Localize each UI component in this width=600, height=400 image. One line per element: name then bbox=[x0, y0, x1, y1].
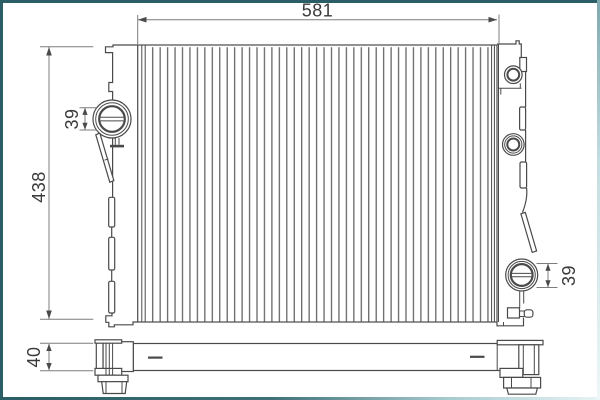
radiator-diagram-page: 581 438 39 39 40 bbox=[0, 0, 600, 400]
side-left-fitting bbox=[95, 340, 133, 394]
left-tank-bracket bbox=[109, 237, 115, 270]
radiator-technical-drawing: 581 438 39 39 40 bbox=[0, 0, 600, 400]
side-body bbox=[133, 344, 520, 371]
dimension-bottom-depth bbox=[40, 343, 93, 370]
right-tank bbox=[497, 41, 538, 326]
left-tank-bracket bbox=[109, 197, 115, 227]
dimension-right-port bbox=[537, 264, 558, 288]
left-tank bbox=[93, 45, 138, 327]
right-strut bbox=[521, 212, 537, 252]
side-view bbox=[95, 340, 543, 394]
lower-fitting-right bbox=[508, 291, 533, 318]
dim-label-right-port: 39 bbox=[559, 265, 579, 286]
left-strut bbox=[96, 133, 114, 182]
dim-label-left-height: 438 bbox=[29, 171, 49, 203]
right-tank-bracket bbox=[520, 162, 527, 188]
right-tank-foot bbox=[497, 318, 524, 326]
left-tank-bracket bbox=[109, 281, 115, 313]
right-port-small bbox=[505, 66, 523, 84]
radiator-core bbox=[138, 45, 497, 322]
dim-label-left-port: 39 bbox=[62, 108, 82, 129]
right-tank-bracket bbox=[520, 107, 526, 130]
core-fins bbox=[148, 47, 490, 321]
dim-label-top-width: 581 bbox=[302, 1, 334, 21]
right-port-mid bbox=[503, 134, 525, 156]
left-tank-foot bbox=[106, 313, 138, 327]
drain-cap-right bbox=[506, 259, 538, 291]
dim-label-bottom-depth: 40 bbox=[24, 346, 44, 367]
front-view bbox=[93, 41, 538, 327]
